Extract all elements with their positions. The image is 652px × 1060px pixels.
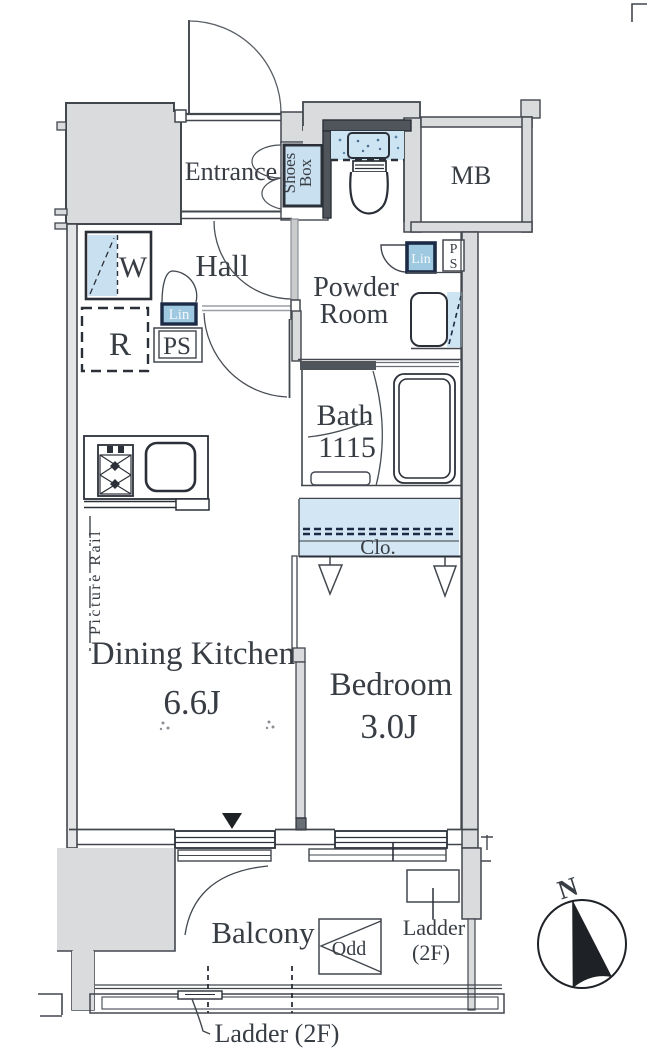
svg-text:6.6J: 6.6J: [163, 683, 220, 722]
svg-text:Balcony: Balcony: [211, 915, 315, 950]
svg-text:Bath: Bath: [317, 399, 374, 432]
svg-text:W: W: [119, 251, 148, 284]
svg-text:Clo.: Clo.: [360, 535, 396, 559]
svg-text:Hall: Hall: [195, 248, 248, 283]
svg-text:(2F): (2F): [412, 940, 450, 965]
svg-text:Odd: Odd: [332, 938, 366, 960]
svg-text:Room: Room: [320, 299, 389, 330]
svg-text:Box: Box: [296, 158, 315, 187]
svg-text:MB: MB: [451, 161, 491, 190]
svg-text:Ladder: Ladder: [403, 915, 466, 940]
svg-text:Bedroom: Bedroom: [330, 667, 453, 703]
svg-text:Ladder (2F): Ladder (2F): [215, 1019, 340, 1048]
svg-text:3.0J: 3.0J: [360, 707, 417, 746]
svg-text:P: P: [450, 242, 458, 257]
svg-text:Lin: Lin: [169, 307, 190, 323]
svg-text:Picture Rail: Picture Rail: [87, 529, 104, 635]
svg-text:1115: 1115: [318, 431, 376, 464]
svg-text:Dining Kitchen: Dining Kitchen: [91, 636, 295, 672]
svg-text:PS: PS: [163, 333, 191, 360]
svg-text:R: R: [109, 327, 131, 363]
svg-text:Entrance: Entrance: [185, 157, 277, 186]
svg-text:S: S: [450, 257, 458, 272]
svg-text:Lin: Lin: [411, 252, 430, 267]
